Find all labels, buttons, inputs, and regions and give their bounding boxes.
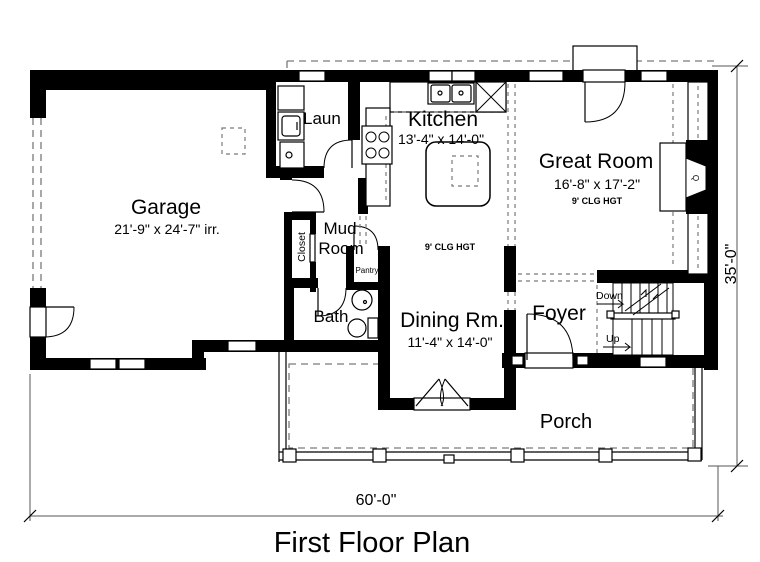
laundry-fixtures bbox=[278, 86, 304, 168]
bath-label: Bath bbox=[314, 307, 349, 326]
bath-sink-icon bbox=[352, 290, 372, 310]
stairs-up-label: Up bbox=[606, 333, 620, 345]
laundry-label: Laun bbox=[303, 109, 341, 128]
mud-room-label-line1: Mud bbox=[323, 219, 356, 238]
kitchen-island-icon bbox=[426, 142, 490, 206]
kitchen-label: Kitchen bbox=[408, 108, 478, 131]
foyer-label: Foyer bbox=[532, 302, 586, 325]
great-room-ceiling-note: 9' CLG HGT bbox=[572, 196, 623, 206]
closet-label: Closet bbox=[296, 232, 308, 262]
floor-plan-canvas: Q Down Up 60'-0" 35'-0" Garage 21'-9" x bbox=[0, 0, 760, 562]
fireplace-label: Q bbox=[691, 175, 700, 181]
fireplace-icon: Q bbox=[660, 140, 718, 214]
refrigerator-icon bbox=[476, 82, 506, 112]
kitchen-ceiling-note: 9' CLG HGT bbox=[425, 242, 476, 252]
page-title: First Floor Plan bbox=[274, 527, 471, 559]
height-dimension: 35'-0" bbox=[723, 244, 740, 285]
mud-room-label-line2: Room bbox=[318, 239, 363, 258]
toilet-icon bbox=[348, 318, 378, 338]
utility-sink-icon bbox=[280, 142, 304, 168]
washer-icon bbox=[278, 112, 304, 140]
stair-landing bbox=[611, 313, 675, 319]
rear-stoop bbox=[573, 46, 637, 72]
closet-door-icon bbox=[310, 234, 315, 262]
garage-size: 21'-9" x 24'-7" irr. bbox=[114, 221, 220, 237]
porch-label: Porch bbox=[540, 411, 592, 433]
kitchen-size: 13'-4" x 14'-0" bbox=[398, 131, 484, 147]
floor-plan: Q Down Up 60'-0" 35'-0" Garage 21'-9" x bbox=[0, 0, 760, 562]
garage-label: Garage bbox=[131, 196, 201, 219]
great-room-label: Great Room bbox=[539, 150, 653, 173]
dining-size: 11'-4" x 14'-0" bbox=[407, 334, 492, 350]
kitchen-sink-icon bbox=[428, 83, 474, 104]
great-room-size: 16'-8" x 17'-2" bbox=[554, 176, 640, 192]
width-dimension: 60'-0" bbox=[356, 492, 397, 509]
dining-label: Dining Rm. bbox=[400, 309, 504, 332]
pantry-label: Pantry bbox=[355, 266, 378, 275]
range-icon bbox=[362, 126, 392, 164]
laundry-counter bbox=[278, 86, 304, 110]
